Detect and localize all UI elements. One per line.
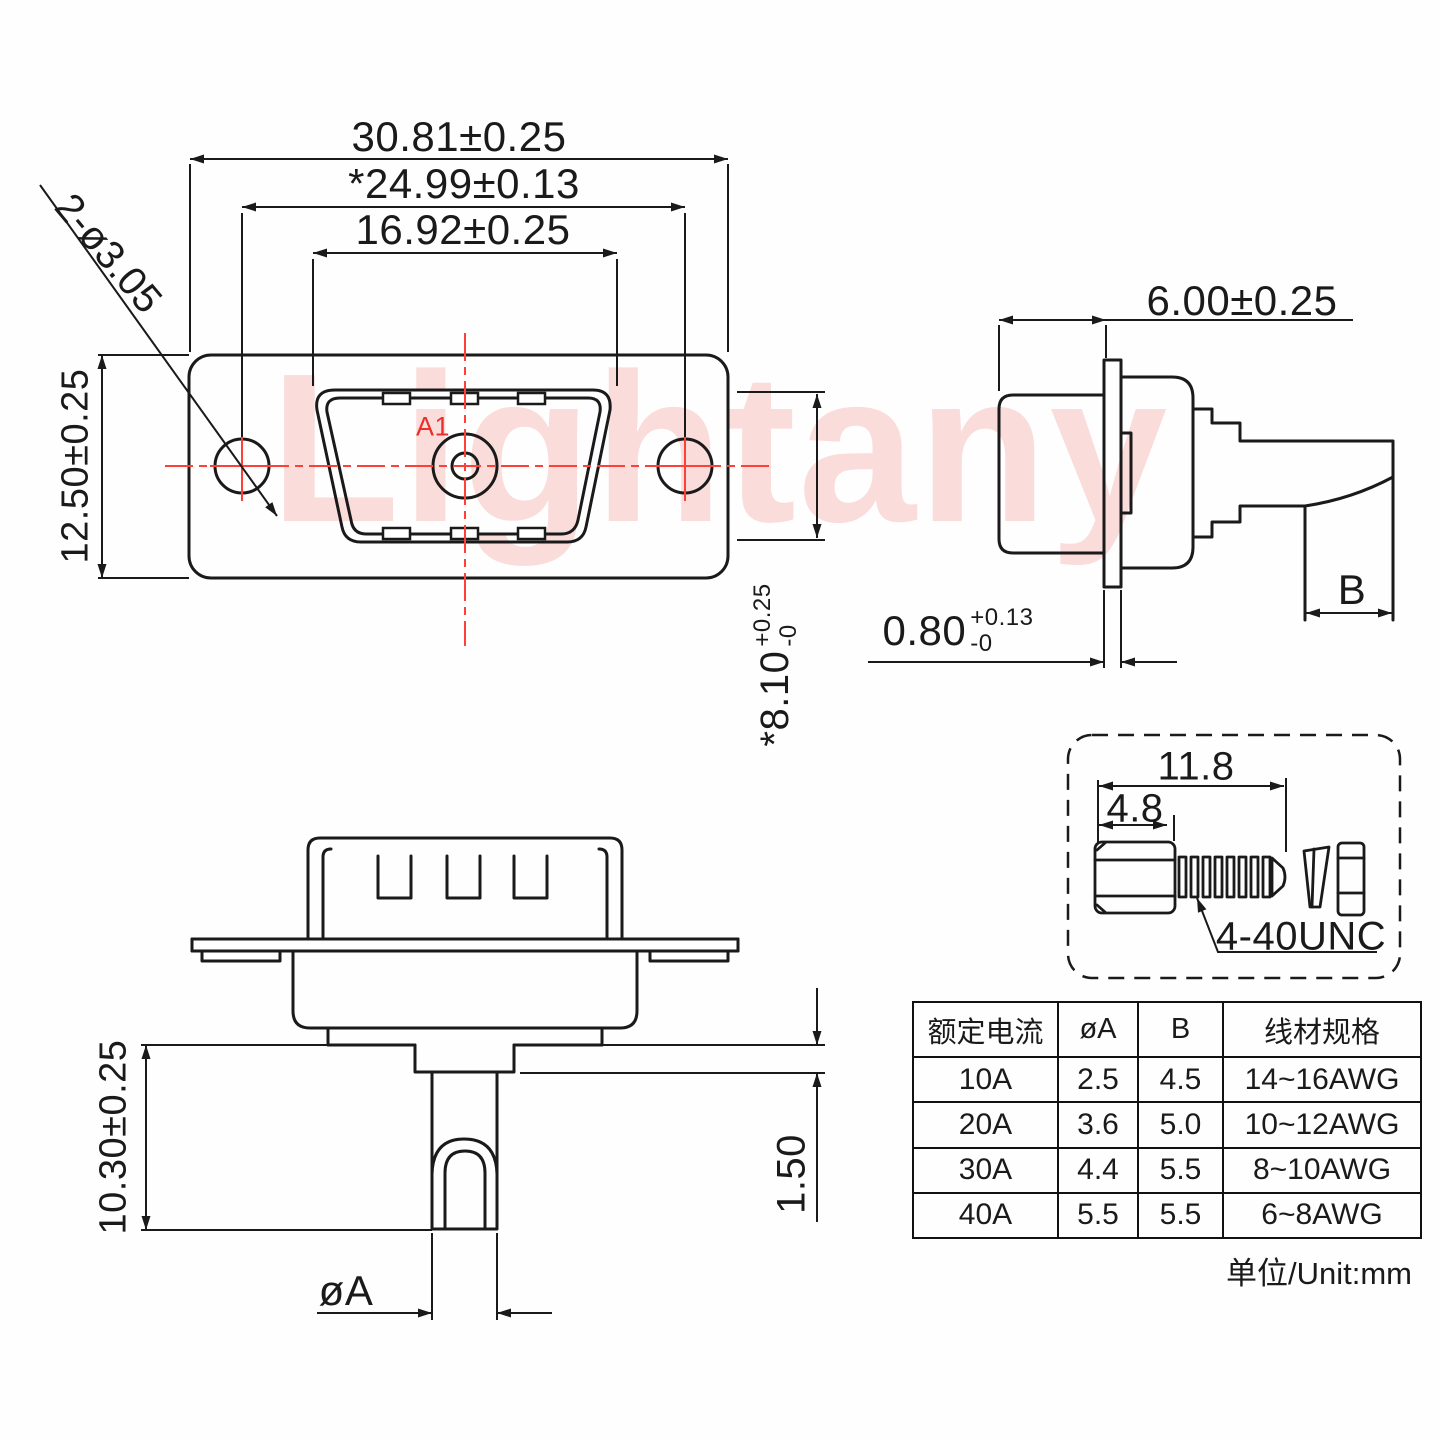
tol-plus: +0.13 (970, 605, 1033, 631)
cell: 6~8AWG (1223, 1193, 1421, 1238)
cell: 10~12AWG (1223, 1102, 1421, 1147)
tol-minus: -0 (970, 631, 1033, 657)
cell: 30A (913, 1148, 1058, 1193)
cell: 40A (913, 1193, 1058, 1238)
col-pin-diameter: øA (1058, 1002, 1138, 1057)
dim-standoff: 1.50 (770, 1134, 815, 1214)
cell: 2.5 (1058, 1057, 1138, 1102)
dim-pin-diameter: øA (319, 1267, 374, 1315)
cell: 4.4 (1058, 1148, 1138, 1193)
cell: 5.5 (1058, 1193, 1138, 1238)
dim-flange-thickness-tolerance: +0.13 -0 (970, 605, 1033, 657)
screw-thread-label: 4-40UNC (1216, 915, 1386, 960)
spec-table-header-row: 额定电流 øA B 线材规格 (913, 1002, 1421, 1057)
spec-table: 额定电流 øA B 线材规格 10A 2.5 4.5 14~16AWG 20A … (912, 1001, 1422, 1239)
col-wire-gauge: 线材规格 (1223, 1002, 1421, 1057)
bottom-view-dimension-lines (141, 988, 825, 1320)
dim-flange-width: 30.81±0.25 (352, 113, 567, 161)
dim-screw-overall: 11.8 (1158, 745, 1235, 790)
cell: 8~10AWG (1223, 1148, 1421, 1193)
cell: 5.5 (1138, 1193, 1223, 1238)
cell: 10A (913, 1057, 1058, 1102)
dim-shell-height-tolerance: +0.25 -0 (750, 583, 802, 646)
dim-wire-width: B (1338, 566, 1367, 614)
dim-screw-head: 4.8 (1106, 787, 1163, 832)
cell: 5.5 (1138, 1148, 1223, 1193)
screw-detail-outline (1095, 842, 1364, 915)
dim-flange-height: 12.50±0.25 (55, 369, 98, 564)
col-wire-width: B (1138, 1002, 1223, 1057)
dim-flange-thickness: 0.80 +0.13 -0 (883, 605, 1034, 657)
dim-shell-height: *8.10 +0.25 -0 (750, 583, 802, 746)
tol-minus: -0 (776, 583, 802, 646)
unit-note: 单位/Unit:mm (1112, 1248, 1412, 1293)
table-row: 40A 5.5 5.5 6~8AWG (913, 1193, 1421, 1238)
cell: 5.0 (1138, 1102, 1223, 1147)
table-row: 20A 3.6 5.0 10~12AWG (913, 1102, 1421, 1147)
drawing-canvas: Lightany (0, 0, 1440, 1440)
col-rated-current: 额定电流 (913, 1002, 1058, 1057)
dim-depth: 6.00±0.25 (1146, 277, 1337, 325)
dim-hole-span: *24.99±0.13 (348, 160, 580, 208)
pin-a1-label: A1 (416, 412, 450, 443)
cell: 3.6 (1058, 1102, 1138, 1147)
tol-plus: +0.25 (750, 583, 776, 646)
cell: 4.5 (1138, 1057, 1223, 1102)
dim-shell-width: 16.92±0.25 (356, 206, 571, 254)
dim-pin-length: 10.30±0.25 (93, 1040, 136, 1235)
dim-shell-height-main: *8.10 (754, 651, 799, 747)
side-view-outline (999, 360, 1393, 620)
bottom-view-outline (192, 838, 738, 1229)
cell: 14~16AWG (1223, 1057, 1421, 1102)
dim-flange-thickness-main: 0.80 (883, 607, 967, 655)
table-row: 30A 4.4 5.5 8~10AWG (913, 1148, 1421, 1193)
cell: 20A (913, 1102, 1058, 1147)
table-row: 10A 2.5 4.5 14~16AWG (913, 1057, 1421, 1102)
